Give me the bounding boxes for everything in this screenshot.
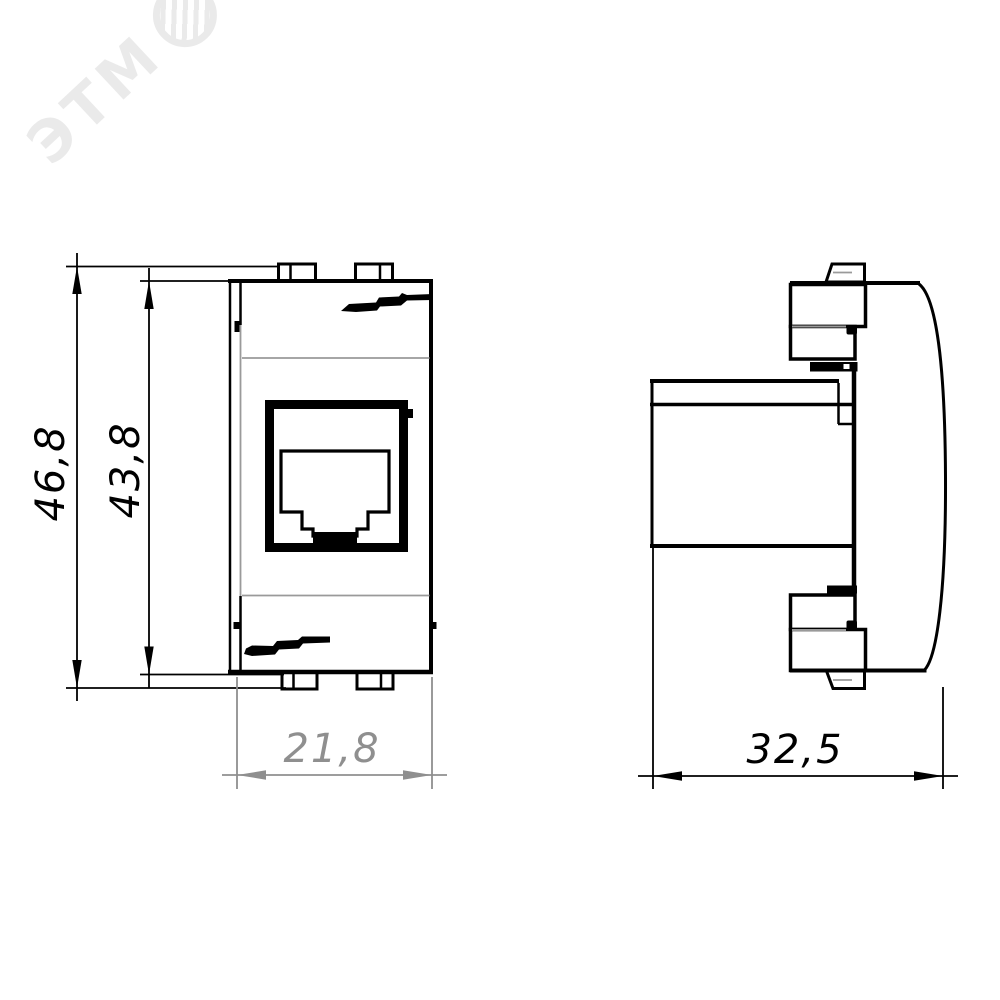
side-top-clip-lower — [791, 327, 856, 360]
side-bottom-clip-lower — [791, 630, 866, 671]
dim-438-arrow-up — [144, 281, 153, 309]
dim-468-arrow-down — [72, 660, 81, 688]
technical-drawing: 46,8 43,8 21,8 — [0, 0, 1000, 1000]
side-faceplate-curve — [919, 284, 946, 670]
rj45-latch-slot — [313, 532, 357, 552]
front-right-pip — [431, 622, 437, 629]
side-bottom-clip-corner — [847, 621, 858, 630]
dim-438-label: 43,8 — [103, 421, 149, 518]
dim-325-arrow-right — [914, 771, 943, 780]
front-left-pip — [234, 622, 240, 629]
side-bottom-clip — [791, 586, 866, 671]
front-view — [228, 264, 437, 689]
front-top-tab-left — [279, 264, 316, 281]
side-top-clip-corner — [847, 326, 858, 335]
dim-438-arrow-down — [144, 647, 153, 675]
rj45-frame-nub — [404, 409, 413, 418]
side-bottom-clip-base-bar — [827, 586, 857, 594]
dim-325-label: 32,5 — [746, 727, 843, 773]
front-mould-mark-top — [341, 293, 433, 312]
side-top-clip-upper — [791, 285, 866, 327]
side-top-clip-base-bar — [810, 362, 858, 372]
front-bottom-tab-left — [282, 672, 317, 689]
dimension-overall-height: 46,8 — [28, 253, 286, 701]
side-jack-housing — [650, 379, 854, 548]
drawing-canvas: ЭТМ — [0, 0, 1000, 1000]
dim-468-label: 46,8 — [28, 424, 74, 521]
dim-218-arrow-left — [237, 770, 266, 779]
side-bottom-clip-upper — [791, 595, 856, 630]
dimension-front-width: 21,8 — [222, 677, 447, 789]
side-top-clip-base-notch — [844, 364, 850, 369]
front-top-tab-right — [356, 264, 393, 281]
dim-325-arrow-left — [653, 771, 682, 780]
dim-468-arrow-up — [72, 267, 81, 295]
side-top-clip — [791, 285, 866, 372]
front-mould-mark-bottom — [244, 637, 330, 657]
front-left-edge-notch — [235, 321, 240, 332]
rj45-socket — [270, 405, 414, 553]
side-view — [650, 264, 946, 689]
dim-218-label: 21,8 — [283, 726, 380, 772]
dimension-body-height: 43,8 — [103, 268, 284, 688]
dim-218-arrow-right — [403, 770, 432, 779]
front-bottom-tab-right — [357, 672, 393, 689]
